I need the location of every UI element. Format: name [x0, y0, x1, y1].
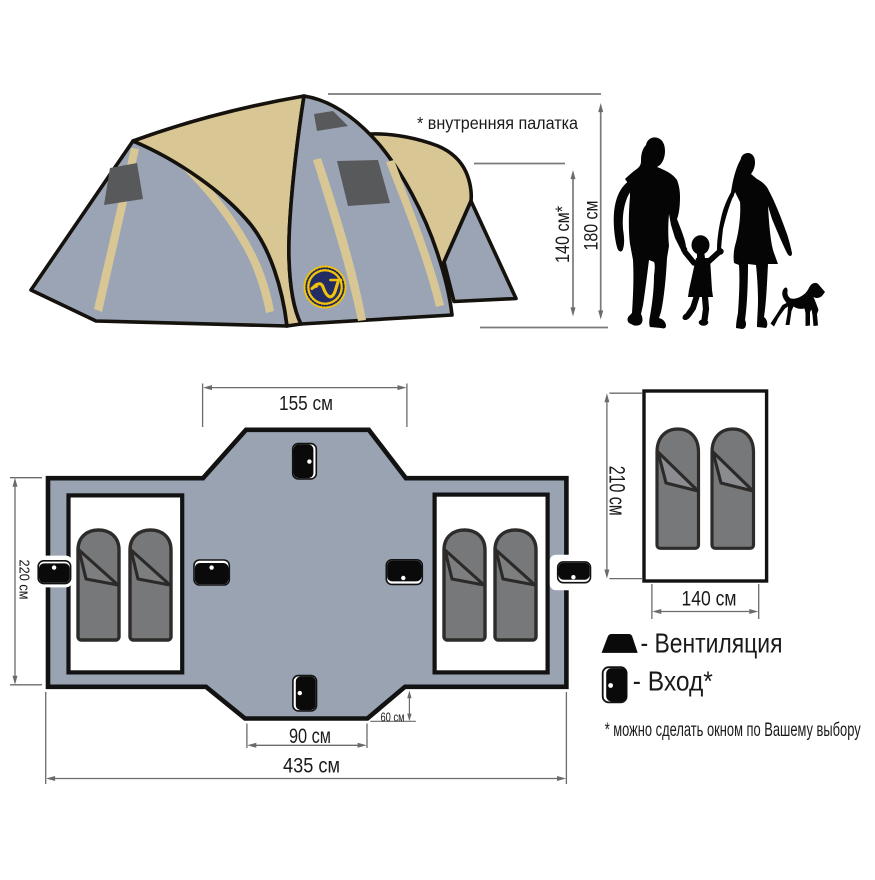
svg-text:180 см: 180 см [581, 201, 603, 251]
svg-text:90 см: 90 см [289, 725, 331, 748]
svg-text:- Вход*: - Вход* [633, 666, 713, 697]
svg-text:140 см: 140 см [682, 588, 737, 611]
svg-text:155 см: 155 см [279, 392, 333, 415]
svg-text:435 см: 435 см [283, 754, 340, 777]
svg-text:220 см: 220 см [16, 560, 32, 600]
svg-text:- Вентиляция: - Вентиляция [641, 628, 783, 659]
svg-text:* можно сделать окном по Вашем: * можно сделать окном по Вашему выбору [605, 719, 861, 741]
svg-text:60 см: 60 см [381, 710, 405, 725]
svg-text:140 см*: 140 см* [552, 206, 574, 263]
svg-text:210 см: 210 см [605, 466, 630, 516]
svg-text:* внутренняя палатка: * внутренняя палатка [417, 113, 578, 133]
